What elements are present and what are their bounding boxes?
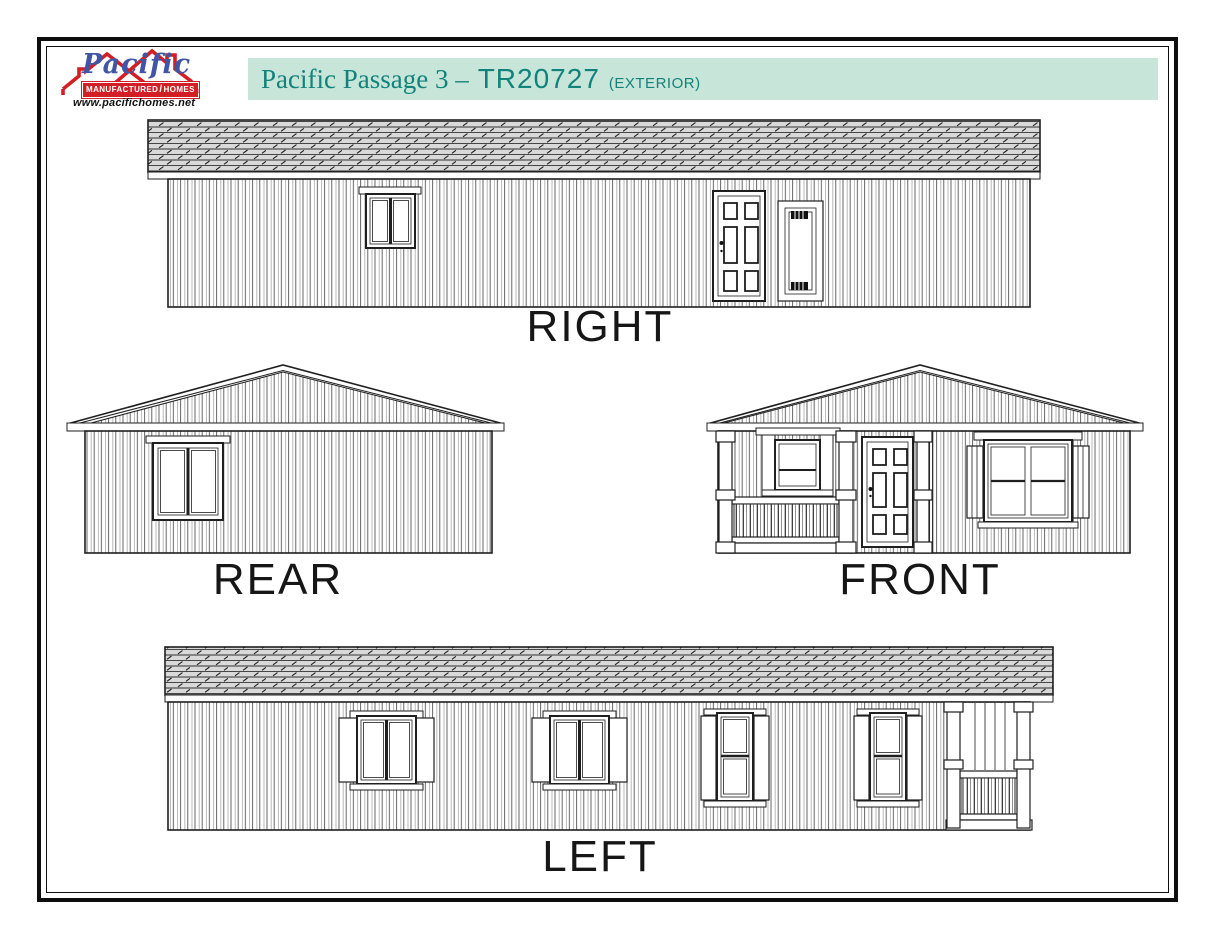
- front-door-knob: [869, 487, 873, 491]
- front-gable: [724, 372, 1124, 423]
- front-porch-window: [756, 428, 840, 502]
- left-porch: [944, 702, 1033, 830]
- right-entry-door: [713, 191, 765, 301]
- right-roof: [148, 120, 1040, 172]
- elevation-drawings: RIGHT REAR: [0, 0, 1214, 938]
- elevation-front: FRONT: [707, 365, 1143, 604]
- elevation-rear: REAR: [67, 365, 504, 604]
- left-porch-post-right: [1014, 702, 1033, 828]
- right-elevation-label: RIGHT: [527, 302, 674, 351]
- elevation-right: RIGHT: [148, 120, 1040, 351]
- front-double-window: [967, 432, 1089, 528]
- left-elevation-label: LEFT: [542, 832, 658, 881]
- rear-wall: [85, 431, 492, 553]
- front-window-shutter-left: [967, 446, 983, 518]
- front-elevation-label: FRONT: [839, 555, 1001, 604]
- right-fascia: [148, 172, 1040, 179]
- front-porch-post-left: [716, 431, 735, 553]
- right-window: [359, 187, 421, 248]
- front-porch-post-right: [836, 431, 856, 553]
- right-door-knob: [720, 241, 724, 245]
- elevation-sheet: { "header": { "logo": { "brand": "Pacifi…: [0, 0, 1214, 938]
- rear-gable: [91, 372, 485, 423]
- elevation-left: LEFT: [165, 647, 1053, 881]
- rear-window: [146, 436, 230, 520]
- front-door-trim-post: [914, 431, 932, 553]
- left-window-1: [339, 711, 434, 790]
- left-roof: [165, 647, 1053, 695]
- rear-eave-fascia: [67, 423, 504, 431]
- rear-elevation-label: REAR: [213, 555, 343, 604]
- right-access-panel: [778, 201, 823, 301]
- right-wall: [168, 179, 1030, 307]
- left-window-3: [701, 709, 769, 807]
- left-fascia: [165, 695, 1053, 702]
- front-porch-railing: [719, 497, 853, 553]
- left-window-4: [854, 709, 922, 807]
- left-window-2: [532, 711, 627, 790]
- left-porch-post-left: [944, 702, 963, 828]
- front-entry-door: [862, 437, 913, 547]
- front-window-shutter-right: [1073, 446, 1089, 518]
